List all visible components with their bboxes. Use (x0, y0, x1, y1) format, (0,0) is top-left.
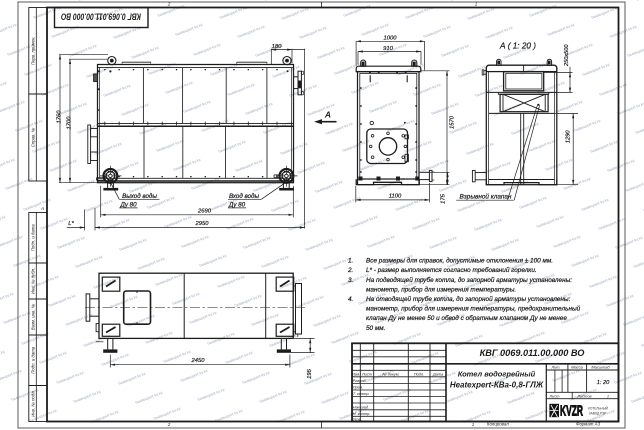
svg-text:heatexpert-kv.kz: heatexpert-kv.kz (343, 3, 372, 18)
svg-text:манометр, прибор для измерения: манометр, прибор для измерения температу… (366, 305, 581, 313)
svg-text:heatexpert-kv.kz: heatexpert-kv.kz (181, 234, 210, 249)
svg-text:heatexpert-kv.kz: heatexpert-kv.kz (173, 157, 202, 172)
svg-text:Листов: Листов (576, 394, 591, 399)
svg-text:heatexpert-kv.kz: heatexpert-kv.kz (218, 139, 247, 154)
svg-text:Подп. и дата: Подп. и дата (30, 224, 35, 252)
svg-text:heatexpert-kv.kz: heatexpert-kv.kz (606, 293, 635, 308)
svg-text:heatexpert-kv.kz: heatexpert-kv.kz (563, 176, 592, 191)
svg-text:heatexpert-kv.kz: heatexpert-kv.kz (131, 45, 160, 60)
svg-text:ЗАВОД РЗР: ЗАВОД РЗР (589, 412, 607, 416)
svg-text:heatexpert-kv.kz: heatexpert-kv.kz (0, 214, 6, 229)
svg-text:1290: 1290 (566, 130, 572, 144)
svg-text:heatexpert-kv.kz: heatexpert-kv.kz (297, 160, 326, 175)
svg-text:heatexpert-kv.kz: heatexpert-kv.kz (321, 390, 350, 405)
svg-text:2690: 2690 (197, 208, 212, 214)
svg-text:heatexpert-kv.kz: heatexpert-kv.kz (245, 101, 274, 116)
svg-text:heatexpert-kv.kz: heatexpert-kv.kz (121, 102, 150, 117)
svg-text:Перв. примен.: Перв. примен. (30, 36, 35, 65)
svg-text:4.: 4. (348, 296, 353, 303)
svg-text:1570: 1570 (450, 115, 456, 129)
svg-text:Масса: Масса (571, 365, 583, 370)
svg-text:heatexpert-kv.kz: heatexpert-kv.kz (529, 3, 558, 18)
svg-text:heatexpert-kv.kz: heatexpert-kv.kz (57, 235, 86, 250)
svg-text:На подводящей трубе котла, до: На подводящей трубе котла, до запорной а… (366, 276, 572, 284)
svg-text:heatexpert-kv.kz: heatexpert-kv.kz (441, 43, 470, 58)
svg-text:heatexpert-kv.kz: heatexpert-kv.kz (56, 370, 85, 385)
svg-text:heatexpert-kv.kz: heatexpert-kv.kz (3, 310, 32, 325)
svg-text:1100: 1100 (389, 193, 402, 199)
svg-text:heatexpert-kv.kz: heatexpert-kv.kz (388, 0, 417, 1)
svg-text:heatexpert-kv.kz: heatexpert-kv.kz (156, 138, 185, 153)
svg-text:heatexpert-kv.kz: heatexpert-kv.kz (0, 349, 5, 364)
svg-text:180: 180 (272, 44, 282, 50)
svg-text:heatexpert-kv.kz: heatexpert-kv.kz (553, 234, 582, 249)
svg-text:heatexpert-kv.kz: heatexpert-kv.kz (501, 179, 530, 194)
svg-text:heatexpert-kv.kz: heatexpert-kv.kz (421, 158, 450, 173)
svg-text:манометр, прибор для измерения: манометр, прибор для измерения температу… (366, 285, 516, 293)
svg-text:А ( 1: 20 ): А ( 1: 20 ) (499, 42, 536, 51)
svg-text:2: 2 (167, 2, 171, 7)
svg-text:heatexpert-kv.kz: heatexpert-kv.kz (48, 293, 77, 308)
svg-text:heatexpert-kv.kz: heatexpert-kv.kz (85, 198, 114, 213)
svg-text:heatexpert-kv.kz: heatexpert-kv.kz (0, 157, 15, 172)
svg-text:heatexpert-kv.kz: heatexpert-kv.kz (555, 99, 584, 114)
svg-text:Инв. № дубл.: Инв. № дубл. (30, 268, 35, 294)
svg-text:heatexpert-kv.kz: heatexpert-kv.kz (119, 237, 148, 252)
svg-text:Формат А3: Формат А3 (576, 421, 601, 426)
svg-text:heatexpert-kv.kz: heatexpert-kv.kz (202, 0, 231, 1)
svg-text:1700: 1700 (66, 116, 72, 130)
svg-text:heatexpert-kv.kz: heatexpert-kv.kz (197, 387, 226, 402)
svg-text:heatexpert-kv.kz: heatexpert-kv.kz (545, 157, 574, 172)
svg-text:heatexpert-kv.kz: heatexpert-kv.kz (103, 83, 132, 98)
svg-text:heatexpert-kv.kz: heatexpert-kv.kz (305, 237, 334, 252)
svg-text:Лит.: Лит. (550, 365, 560, 370)
svg-text:heatexpert-kv.kz: heatexpert-kv.kz (536, 214, 565, 229)
svg-text:heatexpert-kv.kz: heatexpert-kv.kz (193, 42, 222, 57)
svg-text:Масштаб: Масштаб (591, 365, 610, 370)
svg-text:heatexpert-kv.kz: heatexpert-kv.kz (135, 390, 164, 405)
svg-text:На отводящей трубе котла, до з: На отводящей трубе котла, до запорной ар… (366, 295, 571, 303)
svg-text:heatexpert-kv.kz: heatexpert-kv.kz (199, 253, 228, 268)
svg-text:Копировал: Копировал (487, 421, 509, 426)
svg-text:3.: 3. (348, 277, 353, 284)
svg-text:heatexpert-kv.kz: heatexpert-kv.kz (0, 22, 17, 37)
svg-text:heatexpert-kv.kz: heatexpert-kv.kz (73, 389, 102, 404)
svg-text:heatexpert-kv.kz: heatexpert-kv.kz (609, 24, 638, 39)
svg-text:Пров.: Пров. (353, 385, 363, 390)
svg-text:heatexpert-kv.kz: heatexpert-kv.kz (0, 368, 22, 383)
svg-text:heatexpert-kv.kz: heatexpert-kv.kz (474, 217, 503, 232)
svg-text:heatexpert-kv.kz: heatexpert-kv.kz (317, 45, 346, 60)
svg-text:heatexpert-kv.kz: heatexpert-kv.kz (65, 312, 94, 327)
svg-text:heatexpert-kv.kz: heatexpert-kv.kz (383, 387, 412, 402)
svg-text:heatexpert-kv.kz: heatexpert-kv.kz (157, 3, 186, 18)
svg-text:Дата: Дата (432, 371, 444, 376)
svg-text:heatexpert-kv.kz: heatexpert-kv.kz (635, 120, 644, 135)
svg-text:heatexpert-kv.kz: heatexpert-kv.kz (237, 24, 266, 39)
svg-text:heatexpert-kv.kz: heatexpert-kv.kz (315, 179, 344, 194)
svg-text:Н. контр.: Н. контр. (353, 411, 371, 416)
svg-text:heatexpert-kv.kz: heatexpert-kv.kz (633, 254, 644, 269)
svg-text:heatexpert-kv.kz: heatexpert-kv.kz (625, 178, 644, 193)
svg-text:heatexpert-kv.kz: heatexpert-kv.kz (411, 350, 440, 365)
svg-text:heatexpert-kv.kz: heatexpert-kv.kz (590, 139, 619, 154)
svg-text:heatexpert-kv.kz: heatexpert-kv.kz (466, 141, 495, 156)
svg-text:heatexpert-kv.kz: heatexpert-kv.kz (243, 235, 272, 250)
svg-text:Справ. №: Справ. № (30, 127, 35, 147)
svg-text:heatexpert-kv.kz: heatexpert-kv.kz (299, 25, 328, 40)
svg-text:heatexpert-kv.kz: heatexpert-kv.kz (325, 121, 354, 136)
svg-text:Heatexpert-КВа-0,8-ГЛЖ: Heatexpert-КВа-0,8-ГЛЖ (450, 381, 544, 390)
svg-text:heatexpert-kv.kz: heatexpert-kv.kz (528, 138, 557, 153)
svg-text:Лист: Лист (361, 371, 373, 376)
svg-text:Подп.: Подп. (414, 371, 424, 376)
svg-text:heatexpert-kv.kz: heatexpert-kv.kz (525, 406, 554, 421)
svg-text:1000: 1000 (384, 36, 398, 42)
svg-text:heatexpert-kv.kz: heatexpert-kv.kz (164, 214, 193, 229)
svg-text:heatexpert-kv.kz: heatexpert-kv.kz (547, 22, 576, 37)
svg-text:2: 2 (167, 422, 171, 427)
svg-text:heatexpert-kv.kz: heatexpert-kv.kz (445, 389, 474, 404)
svg-text:heatexpert-kv.kz: heatexpert-kv.kz (333, 195, 362, 210)
svg-text:50 мм.: 50 мм. (366, 325, 385, 332)
svg-text:heatexpert-kv.kz: heatexpert-kv.kz (271, 198, 300, 213)
svg-text:heatexpert-kv.kz: heatexpert-kv.kz (83, 333, 112, 348)
svg-text:Разраб.: Разраб. (353, 378, 367, 383)
svg-text:heatexpert-kv.kz: heatexpert-kv.kz (598, 216, 627, 231)
svg-text:1: 20: 1: 20 (597, 380, 610, 386)
svg-text:Инв. № подл.: Инв. № подл. (30, 390, 35, 417)
svg-text:Ду 80: Ду 80 (119, 201, 137, 208)
svg-text:heatexpert-kv.kz: heatexpert-kv.kz (493, 102, 522, 117)
svg-text:heatexpert-kv.kz: heatexpert-kv.kz (589, 274, 618, 289)
svg-text:heatexpert-kv.kz: heatexpert-kv.kz (349, 349, 378, 364)
svg-text:heatexpert-kv.kz: heatexpert-kv.kz (234, 293, 263, 308)
svg-text:heatexpert-kv.kz: heatexpert-kv.kz (350, 214, 379, 229)
svg-text:№ докум.: № докум. (382, 371, 399, 376)
svg-text:клапан Ду не менее 50 и обвод: клапан Ду не менее 50 и обвод с обратным… (366, 314, 567, 322)
svg-text:910: 910 (383, 46, 393, 52)
svg-text:heatexpert-kv.kz: heatexpert-kv.kz (49, 158, 78, 173)
svg-text:heatexpert-kv.kz: heatexpert-kv.kz (0, 234, 23, 249)
svg-text:heatexpert-kv.kz: heatexpert-kv.kz (571, 253, 600, 268)
svg-text:195: 195 (307, 368, 313, 378)
svg-text:175: 175 (441, 193, 447, 203)
svg-text:heatexpert-kv.kz: heatexpert-kv.kz (16, 0, 45, 1)
svg-text:heatexpert-kv.kz: heatexpert-kv.kz (155, 272, 184, 287)
svg-text:КВГ 0.069.011.00.000 ВО: КВГ 0.069.011.00.000 ВО (61, 11, 141, 21)
svg-text:L*: L* (68, 221, 74, 227)
svg-text:heatexpert-kv.kz: heatexpert-kv.kz (253, 178, 282, 193)
svg-text:heatexpert-kv.kz: heatexpert-kv.kz (429, 235, 458, 250)
svg-text:heatexpert-kv.kz: heatexpert-kv.kz (225, 350, 254, 365)
svg-text:heatexpert-kv.kz: heatexpert-kv.kz (259, 389, 288, 404)
svg-text:heatexpert-kv.kz: heatexpert-kv.kz (251, 312, 280, 327)
svg-text:heatexpert-kv.kz: heatexpert-kv.kz (412, 216, 441, 231)
svg-text:heatexpert-kv.kz: heatexpert-kv.kz (39, 350, 68, 365)
svg-text:heatexpert-kv.kz: heatexpert-kv.kz (153, 406, 182, 421)
svg-text:250х500: 250х500 (564, 44, 570, 67)
svg-text:heatexpert-kv.kz: heatexpert-kv.kz (369, 99, 398, 114)
svg-text:Все размеры для справок, допус: Все размеры для справок, допустимые откл… (366, 257, 553, 265)
svg-text:Подп. и дата: Подп. и дата (30, 346, 35, 374)
svg-text:heatexpert-kv.kz: heatexpert-kv.kz (0, 291, 14, 306)
svg-text:heatexpert-kv.kz: heatexpert-kv.kz (175, 22, 204, 37)
svg-text:heatexpert-kv.kz: heatexpert-kv.kz (423, 24, 452, 39)
svg-text:heatexpert-kv.kz: heatexpert-kv.kz (69, 43, 98, 58)
svg-text:heatexpert-kv.kz: heatexpert-kv.kz (0, 99, 25, 114)
svg-text:heatexpert-kv.kz: heatexpert-kv.kz (313, 313, 342, 328)
svg-text:2.: 2. (347, 267, 353, 274)
svg-text:Т. контр.: Т. контр. (353, 391, 370, 396)
svg-text:heatexpert-kv.kz: heatexpert-kv.kz (574, 0, 603, 1)
svg-text:heatexpert-kv.kz: heatexpert-kv.kz (189, 310, 218, 325)
svg-text:heatexpert-kv.kz: heatexpert-kv.kz (617, 101, 644, 116)
svg-text:Лист: Лист (548, 394, 560, 399)
svg-text:КВГ 0069.011.00.000 ВО: КВГ 0069.011.00.000 ВО (480, 348, 585, 358)
svg-text:heatexpert-kv.kz: heatexpert-kv.kz (485, 25, 514, 40)
svg-text:1760: 1760 (56, 110, 62, 124)
svg-text:Изм.: Изм. (352, 371, 360, 376)
svg-text:heatexpert-kv.kz: heatexpert-kv.kz (599, 82, 628, 97)
svg-text:heatexpert-kv.kz: heatexpert-kv.kz (597, 350, 626, 365)
svg-text:2450: 2450 (191, 358, 206, 364)
svg-text:Нач.отд.: Нач.отд. (353, 404, 369, 409)
svg-text:heatexpert-kv.kz: heatexpert-kv.kz (475, 83, 504, 98)
svg-text:А: А (324, 110, 331, 120)
svg-text:heatexpert-kv.kz: heatexpert-kv.kz (102, 217, 131, 232)
svg-text:heatexpert-kv.kz: heatexpert-kv.kz (261, 254, 290, 269)
svg-text:Взам. инв. №: Взам. инв. № (30, 303, 35, 330)
svg-text:heatexpert-kv.kz: heatexpert-kv.kz (145, 330, 174, 345)
svg-text:КОТЕЛЬНЫЙ: КОТЕЛЬНЫЙ (588, 407, 609, 411)
svg-text:heatexpert-kv.kz: heatexpert-kv.kz (165, 80, 194, 95)
svg-text:heatexpert-kv.kz: heatexpert-kv.kz (227, 82, 256, 97)
svg-text:heatexpert-kv.kz: heatexpert-kv.kz (242, 370, 271, 385)
svg-text:heatexpert-kv.kz: heatexpert-kv.kz (641, 333, 644, 348)
svg-text:Выход воды: Выход воды (122, 193, 157, 200)
svg-text:heatexpert-kv.kz: heatexpert-kv.kz (631, 389, 644, 404)
svg-text:heatexpert-kv.kz: heatexpert-kv.kz (573, 118, 602, 133)
svg-text:heatexpert-kv.kz: heatexpert-kv.kz (636, 0, 644, 2)
svg-text:heatexpert-kv.kz: heatexpert-kv.kz (172, 291, 201, 306)
svg-text:heatexpert-kv.kz: heatexpert-kv.kz (287, 352, 316, 367)
svg-text:heatexpert-kv.kz: heatexpert-kv.kz (67, 178, 96, 193)
svg-text:Котел водогрейный: Котел водогрейный (458, 370, 536, 379)
svg-text:А: А (40, 206, 44, 211)
svg-text:heatexpert-kv.kz: heatexpert-kv.kz (75, 254, 104, 269)
svg-text:heatexpert-kv.kz: heatexpert-kv.kz (623, 312, 644, 327)
svg-text:heatexpert-kv.kz: heatexpert-kv.kz (359, 157, 388, 172)
svg-text:heatexpert-kv.kz: heatexpert-kv.kz (582, 62, 611, 77)
svg-text:heatexpert-kv.kz: heatexpert-kv.kz (455, 333, 484, 348)
svg-text:heatexpert-kv.kz: heatexpert-kv.kz (235, 158, 264, 173)
svg-text:heatexpert-kv.kz: heatexpert-kv.kz (491, 237, 520, 252)
svg-text:heatexpert-kv.kz: heatexpert-kv.kz (24, 62, 53, 77)
svg-text:KVZR: KVZR (560, 404, 583, 420)
svg-text:heatexpert-kv.kz: heatexpert-kv.kz (351, 80, 380, 95)
svg-text:heatexpert-kv.kz: heatexpert-kv.kz (288, 217, 317, 232)
svg-text:Утв.: Утв. (353, 417, 362, 422)
svg-text:heatexpert-kv.kz: heatexpert-kv.kz (217, 274, 246, 289)
svg-text:heatexpert-kv.kz: heatexpert-kv.kz (163, 349, 192, 364)
svg-text:heatexpert-kv.kz: heatexpert-kv.kz (439, 178, 468, 193)
svg-text:heatexpert-kv.kz: heatexpert-kv.kz (13, 253, 42, 268)
svg-text:heatexpert-kv.kz: heatexpert-kv.kz (41, 82, 70, 97)
svg-text:heatexpert-kv.kz: heatexpert-kv.kz (581, 197, 610, 212)
svg-text:heatexpert-kv.kz: heatexpert-kv.kz (21, 331, 50, 346)
svg-text:heatexpert-kv.kz: heatexpert-kv.kz (296, 294, 325, 309)
svg-text:heatexpert-kv.kz: heatexpert-kv.kz (519, 195, 548, 210)
svg-text:heatexpert-kv.kz: heatexpert-kv.kz (0, 80, 7, 95)
svg-text:heatexpert-kv.kz: heatexpert-kv.kz (137, 256, 166, 271)
svg-text:heatexpert-kv.kz: heatexpert-kv.kz (40, 216, 69, 231)
svg-text:heatexpert-kv.kz: heatexpert-kv.kz (307, 102, 336, 117)
svg-text:heatexpert-kv.kz: heatexpert-kv.kz (183, 99, 212, 114)
svg-text:1: 1 (607, 394, 609, 399)
svg-text:L* - размер выполняется соглас: L* - размер выполняется согласно требова… (366, 266, 537, 274)
svg-text:heatexpert-kv.kz: heatexpert-kv.kz (367, 234, 396, 249)
svg-text:heatexpert-kv.kz: heatexpert-kv.kz (180, 368, 209, 383)
svg-text:heatexpert-kv.kz: heatexpert-kv.kz (111, 160, 140, 175)
svg-text:1: 1 (472, 422, 475, 427)
svg-text:heatexpert-kv.kz: heatexpert-kv.kz (607, 158, 636, 173)
svg-text:heatexpert-kv.kz: heatexpert-kv.kz (118, 371, 147, 386)
svg-text:Взрывной клапан: Взрывной клапан (460, 193, 512, 201)
svg-text:heatexpert-kv.kz: heatexpert-kv.kz (627, 43, 644, 58)
svg-text:heatexpert-kv.kz: heatexpert-kv.kz (59, 101, 88, 116)
svg-text:heatexpert-kv.kz: heatexpert-kv.kz (396, 62, 425, 77)
svg-text:heatexpert-kv.kz: heatexpert-kv.kz (431, 101, 460, 116)
svg-text:heatexpert-kv.kz: heatexpert-kv.kz (226, 216, 255, 231)
svg-text:Ду 80: Ду 80 (228, 201, 246, 208)
svg-text:2950: 2950 (195, 221, 210, 227)
svg-text:heatexpert-kv.kz: heatexpert-kv.kz (507, 390, 536, 405)
svg-text:heatexpert-kv.kz: heatexpert-kv.kz (148, 61, 177, 76)
svg-text:heatexpert-kv.kz: heatexpert-kv.kz (387, 118, 416, 133)
svg-text:1.: 1. (348, 258, 353, 265)
svg-text:Вход воды: Вход воды (229, 193, 259, 200)
